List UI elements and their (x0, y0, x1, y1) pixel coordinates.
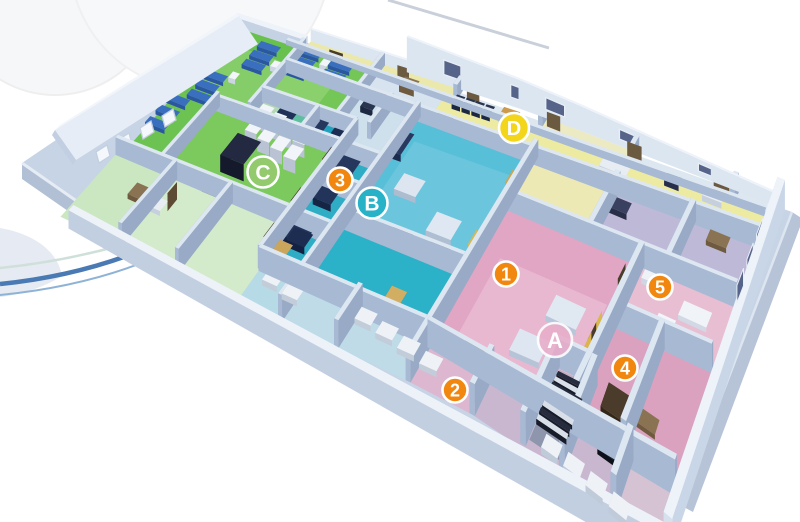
svg-text:4: 4 (620, 358, 630, 378)
svg-text:5: 5 (655, 277, 665, 297)
svg-text:D: D (507, 118, 521, 140)
svg-text:B: B (364, 193, 379, 216)
svg-text:1: 1 (501, 264, 511, 284)
svg-text:2: 2 (450, 380, 460, 400)
svg-text:C: C (255, 162, 270, 185)
svg-text:A: A (547, 328, 563, 353)
svg-text:3: 3 (335, 170, 345, 190)
